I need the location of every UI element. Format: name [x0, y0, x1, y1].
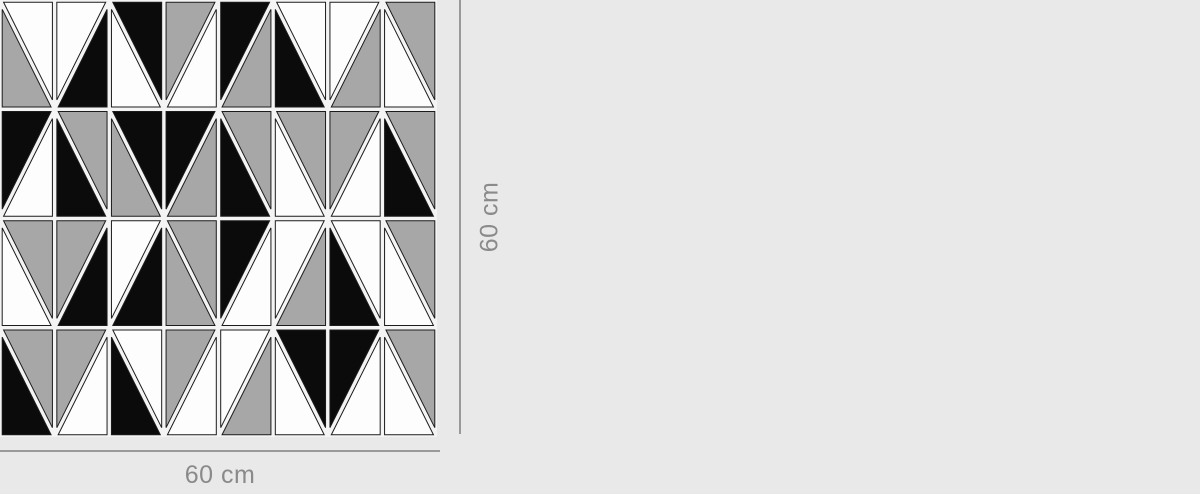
- height-dimension-line: [459, 0, 461, 434]
- pattern-designer-canvas: 60 cm 60 cm: [0, 0, 1200, 494]
- width-dimension-line: [0, 450, 440, 452]
- height-dimension-label: 60 cm: [478, 182, 503, 253]
- width-dimension-label: 60 cm: [0, 463, 440, 488]
- tile-pattern-preview: [0, 0, 437, 437]
